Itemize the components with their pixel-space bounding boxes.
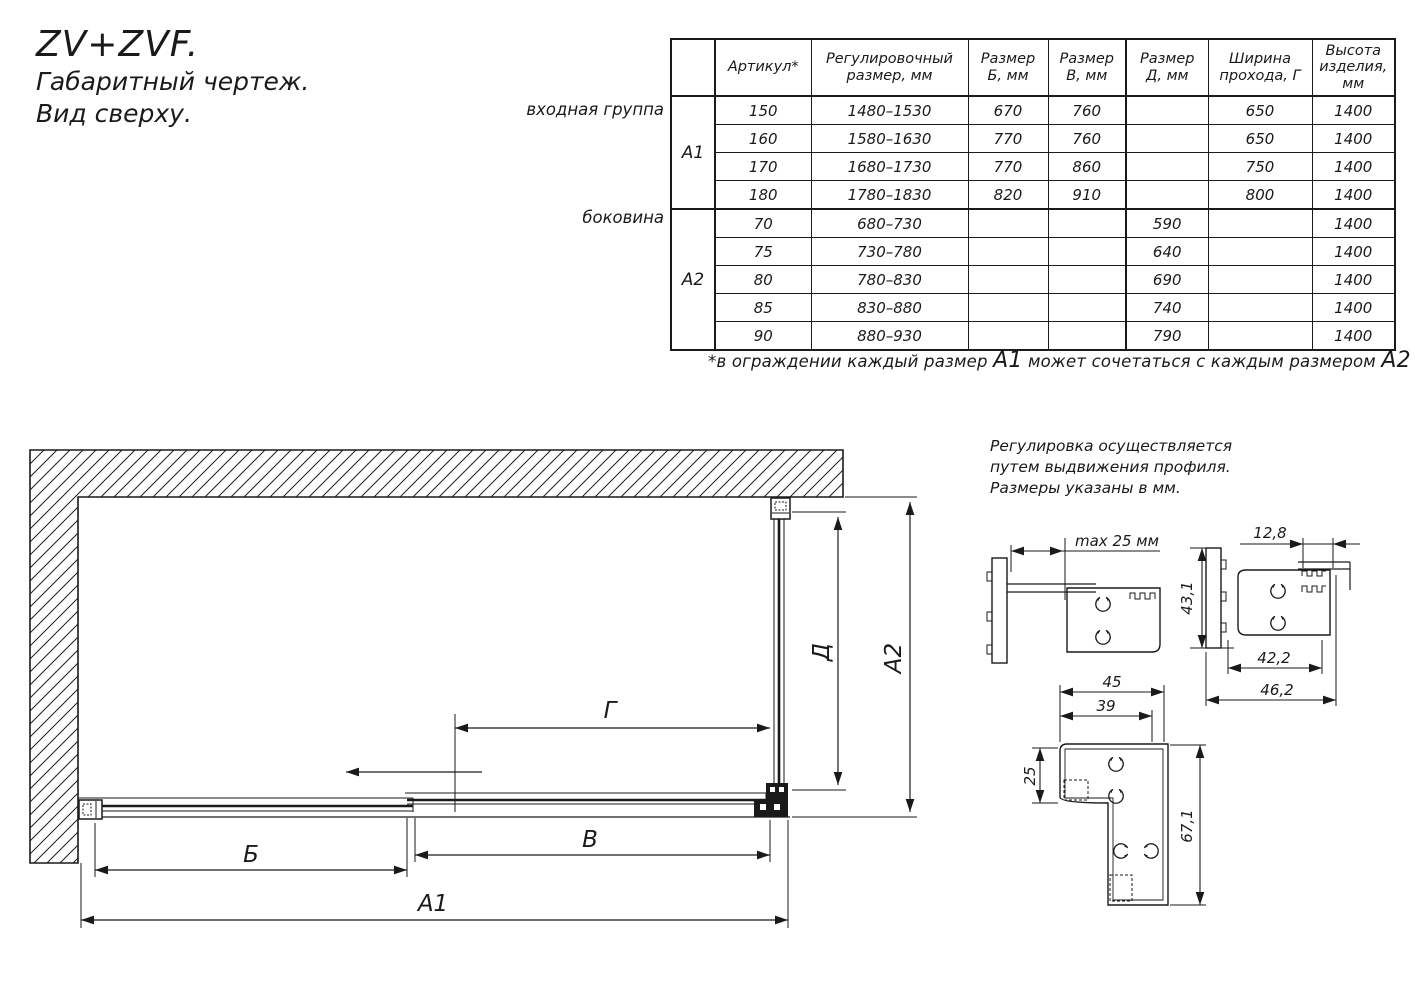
profile-detail-wall — [987, 538, 1160, 663]
extension-lines — [81, 497, 917, 928]
dim-label-a1: А1 — [416, 891, 448, 917]
detail-dim-46-2: 46,2 — [1260, 681, 1293, 699]
profile-detail-corner — [1032, 685, 1206, 905]
detail-dim-39: 39 — [1096, 697, 1115, 715]
detail-dim-43-1: 43,1 — [1178, 581, 1196, 614]
corner-profile-joint — [754, 783, 788, 817]
dim-label-v: В — [582, 827, 598, 853]
detail-dim-45: 45 — [1102, 673, 1121, 691]
wall-profile-bracket-top — [771, 498, 790, 519]
sliding-door — [405, 793, 766, 817]
detail-dim-25: 25 — [1021, 766, 1039, 785]
dim-label-d: Д — [809, 643, 835, 662]
dim-label-g: Г — [604, 698, 619, 724]
dim-label-b: Б — [243, 842, 259, 868]
side-panel — [774, 519, 784, 800]
detail-dim-67-1: 67,1 — [1178, 809, 1196, 842]
dimension-lines — [81, 502, 910, 920]
wall-profile-bracket-left — [79, 800, 102, 819]
detail-dim-12-8: 12,8 — [1253, 524, 1286, 542]
detail-dim-42-2: 42,2 — [1257, 649, 1290, 667]
dim-label-a2: А2 — [881, 643, 907, 675]
top-view-drawing: Б В А1 Г Д А2 max 25 мм — [0, 0, 1415, 1000]
detail-dim-max25: max 25 мм — [1075, 532, 1159, 550]
drawing-sheet: ZV+ZVF. Габаритный чертеж. Вид сверху. в… — [0, 0, 1415, 1000]
